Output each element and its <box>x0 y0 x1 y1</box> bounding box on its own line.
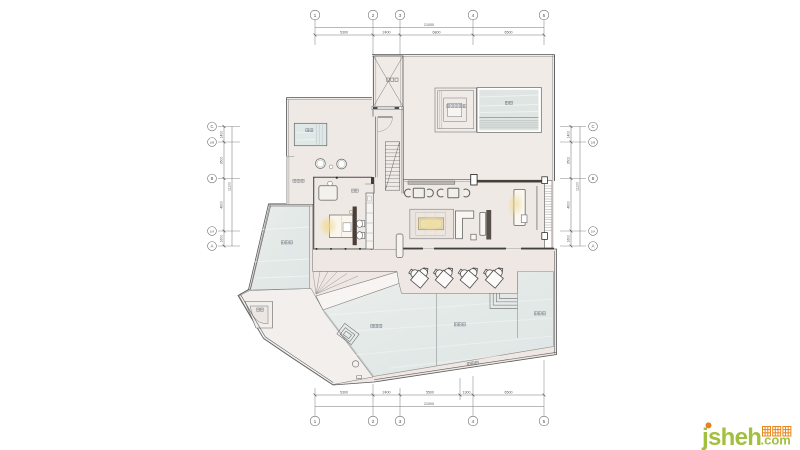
svg-text:3: 3 <box>399 419 402 425</box>
svg-text:1400: 1400 <box>567 131 571 139</box>
svg-text:1/B: 1/B <box>591 141 596 145</box>
svg-text:11100: 11100 <box>228 182 232 191</box>
svg-text:2: 2 <box>372 13 375 19</box>
svg-text:1600: 1600 <box>567 235 571 243</box>
svg-text:1600: 1600 <box>220 235 224 243</box>
svg-text:1/B: 1/B <box>210 141 215 145</box>
svg-text:2400: 2400 <box>383 31 391 35</box>
svg-text:4: 4 <box>472 419 475 425</box>
svg-text:1400: 1400 <box>220 131 224 139</box>
svg-text:5: 5 <box>543 419 546 425</box>
svg-text:A: A <box>592 244 595 249</box>
svg-text:B: B <box>211 176 214 181</box>
svg-text:1: 1 <box>314 419 317 425</box>
svg-text:1: 1 <box>314 13 317 19</box>
svg-text:6500: 6500 <box>505 31 513 35</box>
svg-text:C: C <box>210 124 213 129</box>
svg-text:3500: 3500 <box>220 157 224 165</box>
svg-text:2: 2 <box>372 419 375 425</box>
svg-text:2400: 2400 <box>383 391 391 395</box>
svg-text:4600: 4600 <box>220 201 224 209</box>
svg-text:5300: 5300 <box>340 391 348 395</box>
svg-text:jsheh: jsheh <box>701 424 761 450</box>
svg-text:11100: 11100 <box>576 182 580 191</box>
svg-text:4: 4 <box>472 13 475 19</box>
svg-text:4600: 4600 <box>567 201 571 209</box>
svg-text:1/A: 1/A <box>591 230 596 234</box>
svg-text:6800: 6800 <box>433 31 441 35</box>
svg-text:5300: 5300 <box>340 31 348 35</box>
svg-text:1300: 1300 <box>463 391 471 395</box>
svg-text:C: C <box>591 124 594 129</box>
svg-text:3500: 3500 <box>567 157 571 165</box>
svg-text:5: 5 <box>543 13 546 19</box>
svg-text:21000: 21000 <box>424 402 434 406</box>
svg-text:21000: 21000 <box>424 23 434 27</box>
svg-text:A: A <box>211 244 214 249</box>
svg-text:B: B <box>592 176 595 181</box>
svg-text:6500: 6500 <box>505 391 513 395</box>
svg-text:3: 3 <box>399 13 402 19</box>
svg-text:5500: 5500 <box>426 391 434 395</box>
svg-text:1/A: 1/A <box>210 230 215 234</box>
